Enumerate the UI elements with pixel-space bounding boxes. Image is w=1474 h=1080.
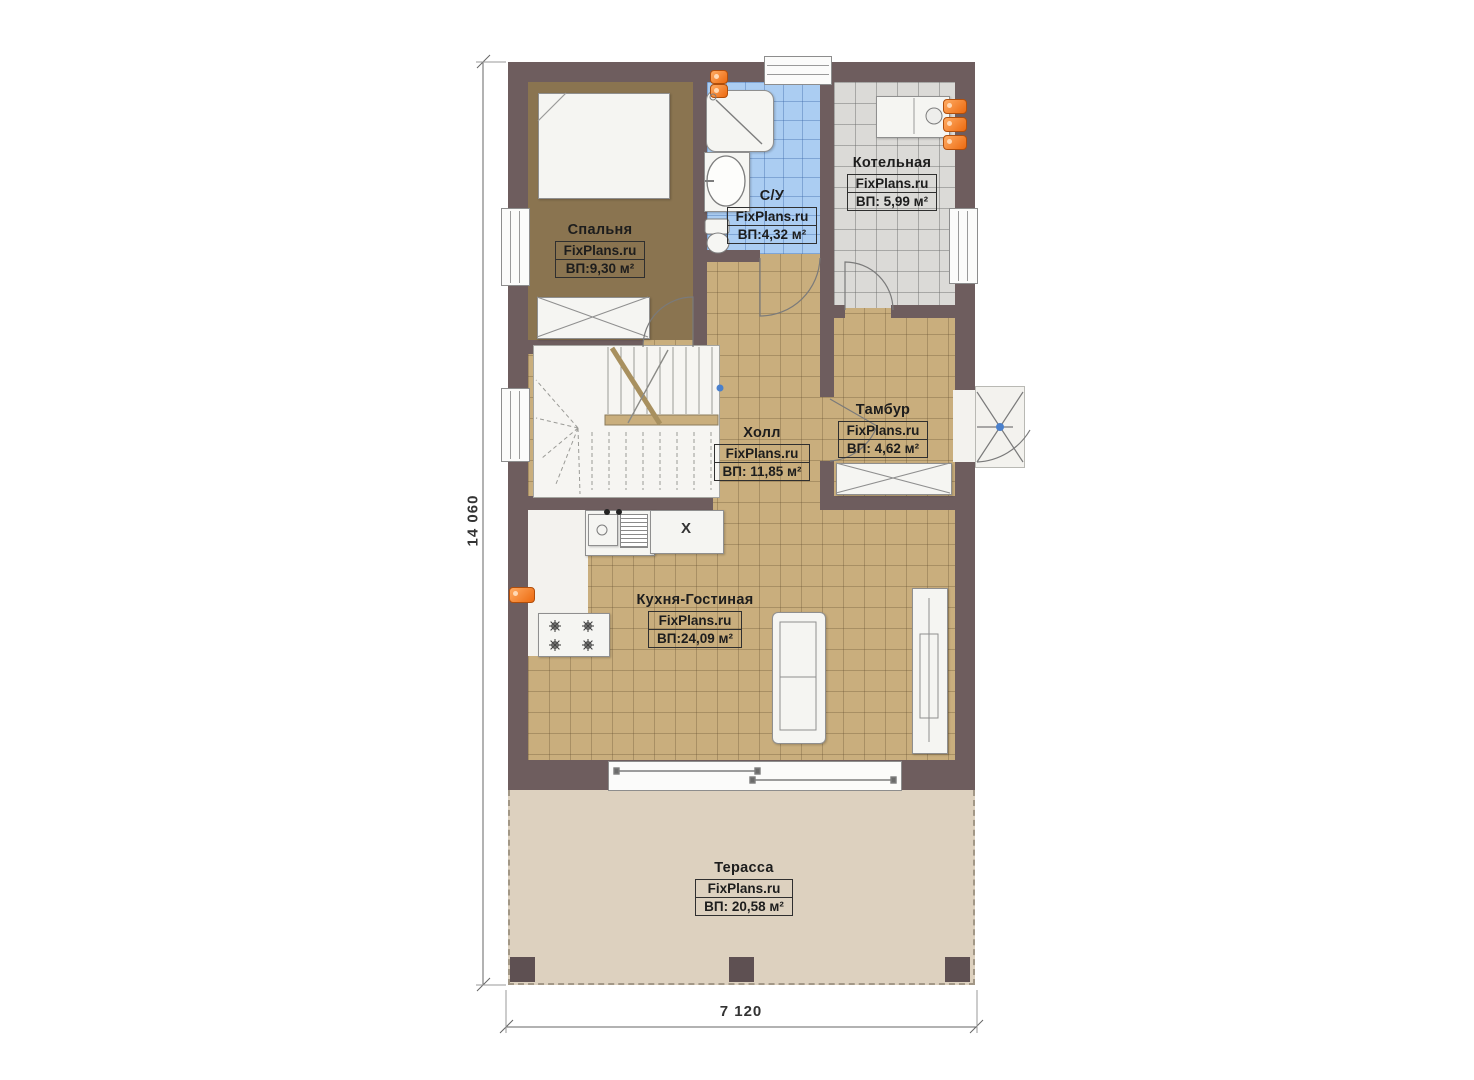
radiator-icon — [710, 70, 728, 84]
kitchen-sink-icon — [588, 514, 618, 546]
room-area: ВП:24,09 м² — [649, 630, 741, 647]
radiator-icon — [710, 84, 728, 98]
sofa — [772, 612, 826, 744]
room-brand: FixPlans.ru — [696, 880, 792, 898]
room-label-kitchen-living: Кухня-Гостиная FixPlans.ru ВП:24,09 м² — [615, 592, 775, 648]
terrace-post — [510, 957, 535, 982]
wardrobe-bedroom — [537, 297, 650, 339]
entrance-porch — [975, 386, 1025, 468]
room-info-box: FixPlans.ru ВП:4,32 м² — [727, 207, 818, 244]
terrace-post — [729, 957, 754, 982]
wall-hall-vestibule-upper — [820, 262, 834, 397]
wall-hall-kitchen — [528, 496, 713, 510]
radiator-icon — [509, 587, 535, 603]
room-brand: FixPlans.ru — [715, 445, 810, 463]
sideboard — [912, 588, 948, 754]
room-info-box: FixPlans.ru ВП:24,09 м² — [648, 611, 742, 648]
wall-boiler-bottom-left — [834, 305, 845, 318]
floor-plan-canvas: Спальня FixPlans.ru ВП:9,30 м² С/У FixPl… — [0, 0, 1474, 1080]
room-info-box: FixPlans.ru ВП: 4,62 м² — [838, 421, 929, 458]
wall-boiler-bottom-right — [891, 305, 955, 318]
room-name: Терасса — [664, 860, 824, 876]
room-area: ВП: 5,99 м² — [848, 193, 937, 210]
bed — [538, 93, 670, 199]
dish-rack-icon — [620, 514, 648, 548]
room-label-vestibule: Тамбур FixPlans.ru ВП: 4,62 м² — [803, 402, 963, 458]
terrace-post — [945, 957, 970, 982]
room-area: ВП: 4,62 м² — [839, 440, 928, 457]
room-area: ВП: 11,85 м² — [715, 463, 810, 480]
window-bathroom — [764, 56, 832, 85]
dimension-horizontal-label: 7 120 — [696, 1003, 786, 1020]
room-info-box: FixPlans.ru ВП:9,30 м² — [555, 241, 646, 278]
window-stairs — [501, 388, 530, 462]
room-brand: FixPlans.ru — [556, 242, 645, 260]
wardrobe-vestibule — [836, 463, 952, 495]
room-area: ВП:9,30 м² — [556, 260, 645, 277]
radiator-icon — [943, 135, 967, 150]
room-brand: FixPlans.ru — [839, 422, 928, 440]
kitchen-cabinet-letter: X — [650, 520, 722, 537]
room-brand: FixPlans.ru — [649, 612, 741, 630]
room-info-box: FixPlans.ru ВП: 20,58 м² — [695, 879, 793, 916]
room-name: Кухня-Гостиная — [615, 592, 775, 608]
sliding-door-terrace — [608, 761, 902, 791]
room-name: Тамбур — [803, 402, 963, 418]
radiator-icon — [943, 99, 967, 114]
room-name: Спальня — [520, 222, 680, 238]
room-area: ВП: 20,58 м² — [696, 898, 792, 915]
dimension-vertical-label: 14 060 — [465, 476, 482, 566]
room-info-box: FixPlans.ru ВП: 11,85 м² — [714, 444, 811, 481]
radiator-icon — [943, 117, 967, 132]
wall-vestibule-bottom — [823, 496, 955, 510]
room-name: Котельная — [812, 155, 972, 171]
window-boiler — [949, 208, 978, 284]
boiler-unit-icon — [876, 96, 950, 138]
room-label-bedroom: Спальня FixPlans.ru ВП:9,30 м² — [520, 222, 680, 278]
room-brand: FixPlans.ru — [728, 208, 817, 226]
room-area: ВП:4,32 м² — [728, 226, 817, 243]
wall-exterior-top — [508, 62, 975, 82]
stove-icon — [538, 613, 610, 657]
wall-bathroom-bottom — [700, 250, 760, 262]
room-brand: FixPlans.ru — [848, 175, 937, 193]
room-label-terrace: Терасса FixPlans.ru ВП: 20,58 м² — [664, 860, 824, 916]
room-info-box: FixPlans.ru ВП: 5,99 м² — [847, 174, 938, 211]
shower-icon — [706, 90, 774, 152]
room-label-boiler: Котельная FixPlans.ru ВП: 5,99 м² — [812, 155, 972, 211]
